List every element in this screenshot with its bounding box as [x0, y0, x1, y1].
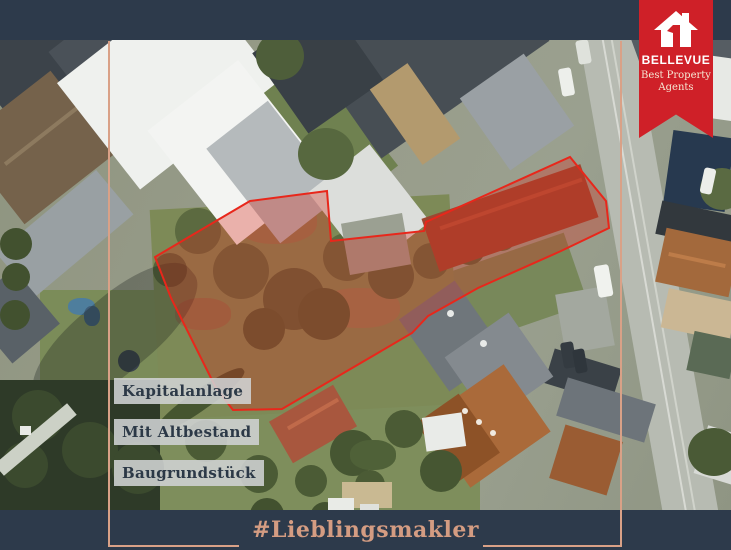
frame-line-bottom-right: [483, 545, 622, 547]
label-baugrundstueck: Baugrundstück: [114, 460, 264, 486]
frame-line-left: [108, 41, 110, 547]
badge-tagline-line2: Agents: [639, 82, 713, 94]
house-logo-icon: [653, 11, 699, 47]
frame-line-right: [620, 41, 622, 547]
property-marketing-image: #Lieblingsmakler Kapitalanlage Mit Altbe…: [0, 0, 731, 550]
label-kapitalanlage: Kapitalanlage: [114, 378, 251, 404]
badge-brand-text: BELLEVUE: [639, 53, 713, 67]
highlighted-plot-polygon: [155, 157, 609, 410]
frame-line-bottom-left: [108, 545, 239, 547]
label-mit-altbestand: Mit Altbestand: [114, 419, 259, 445]
top-navy-bar: [0, 0, 731, 40]
badge-tagline: Best Property Agents: [639, 70, 713, 94]
badge-tagline-line1: Best Property: [639, 70, 713, 82]
